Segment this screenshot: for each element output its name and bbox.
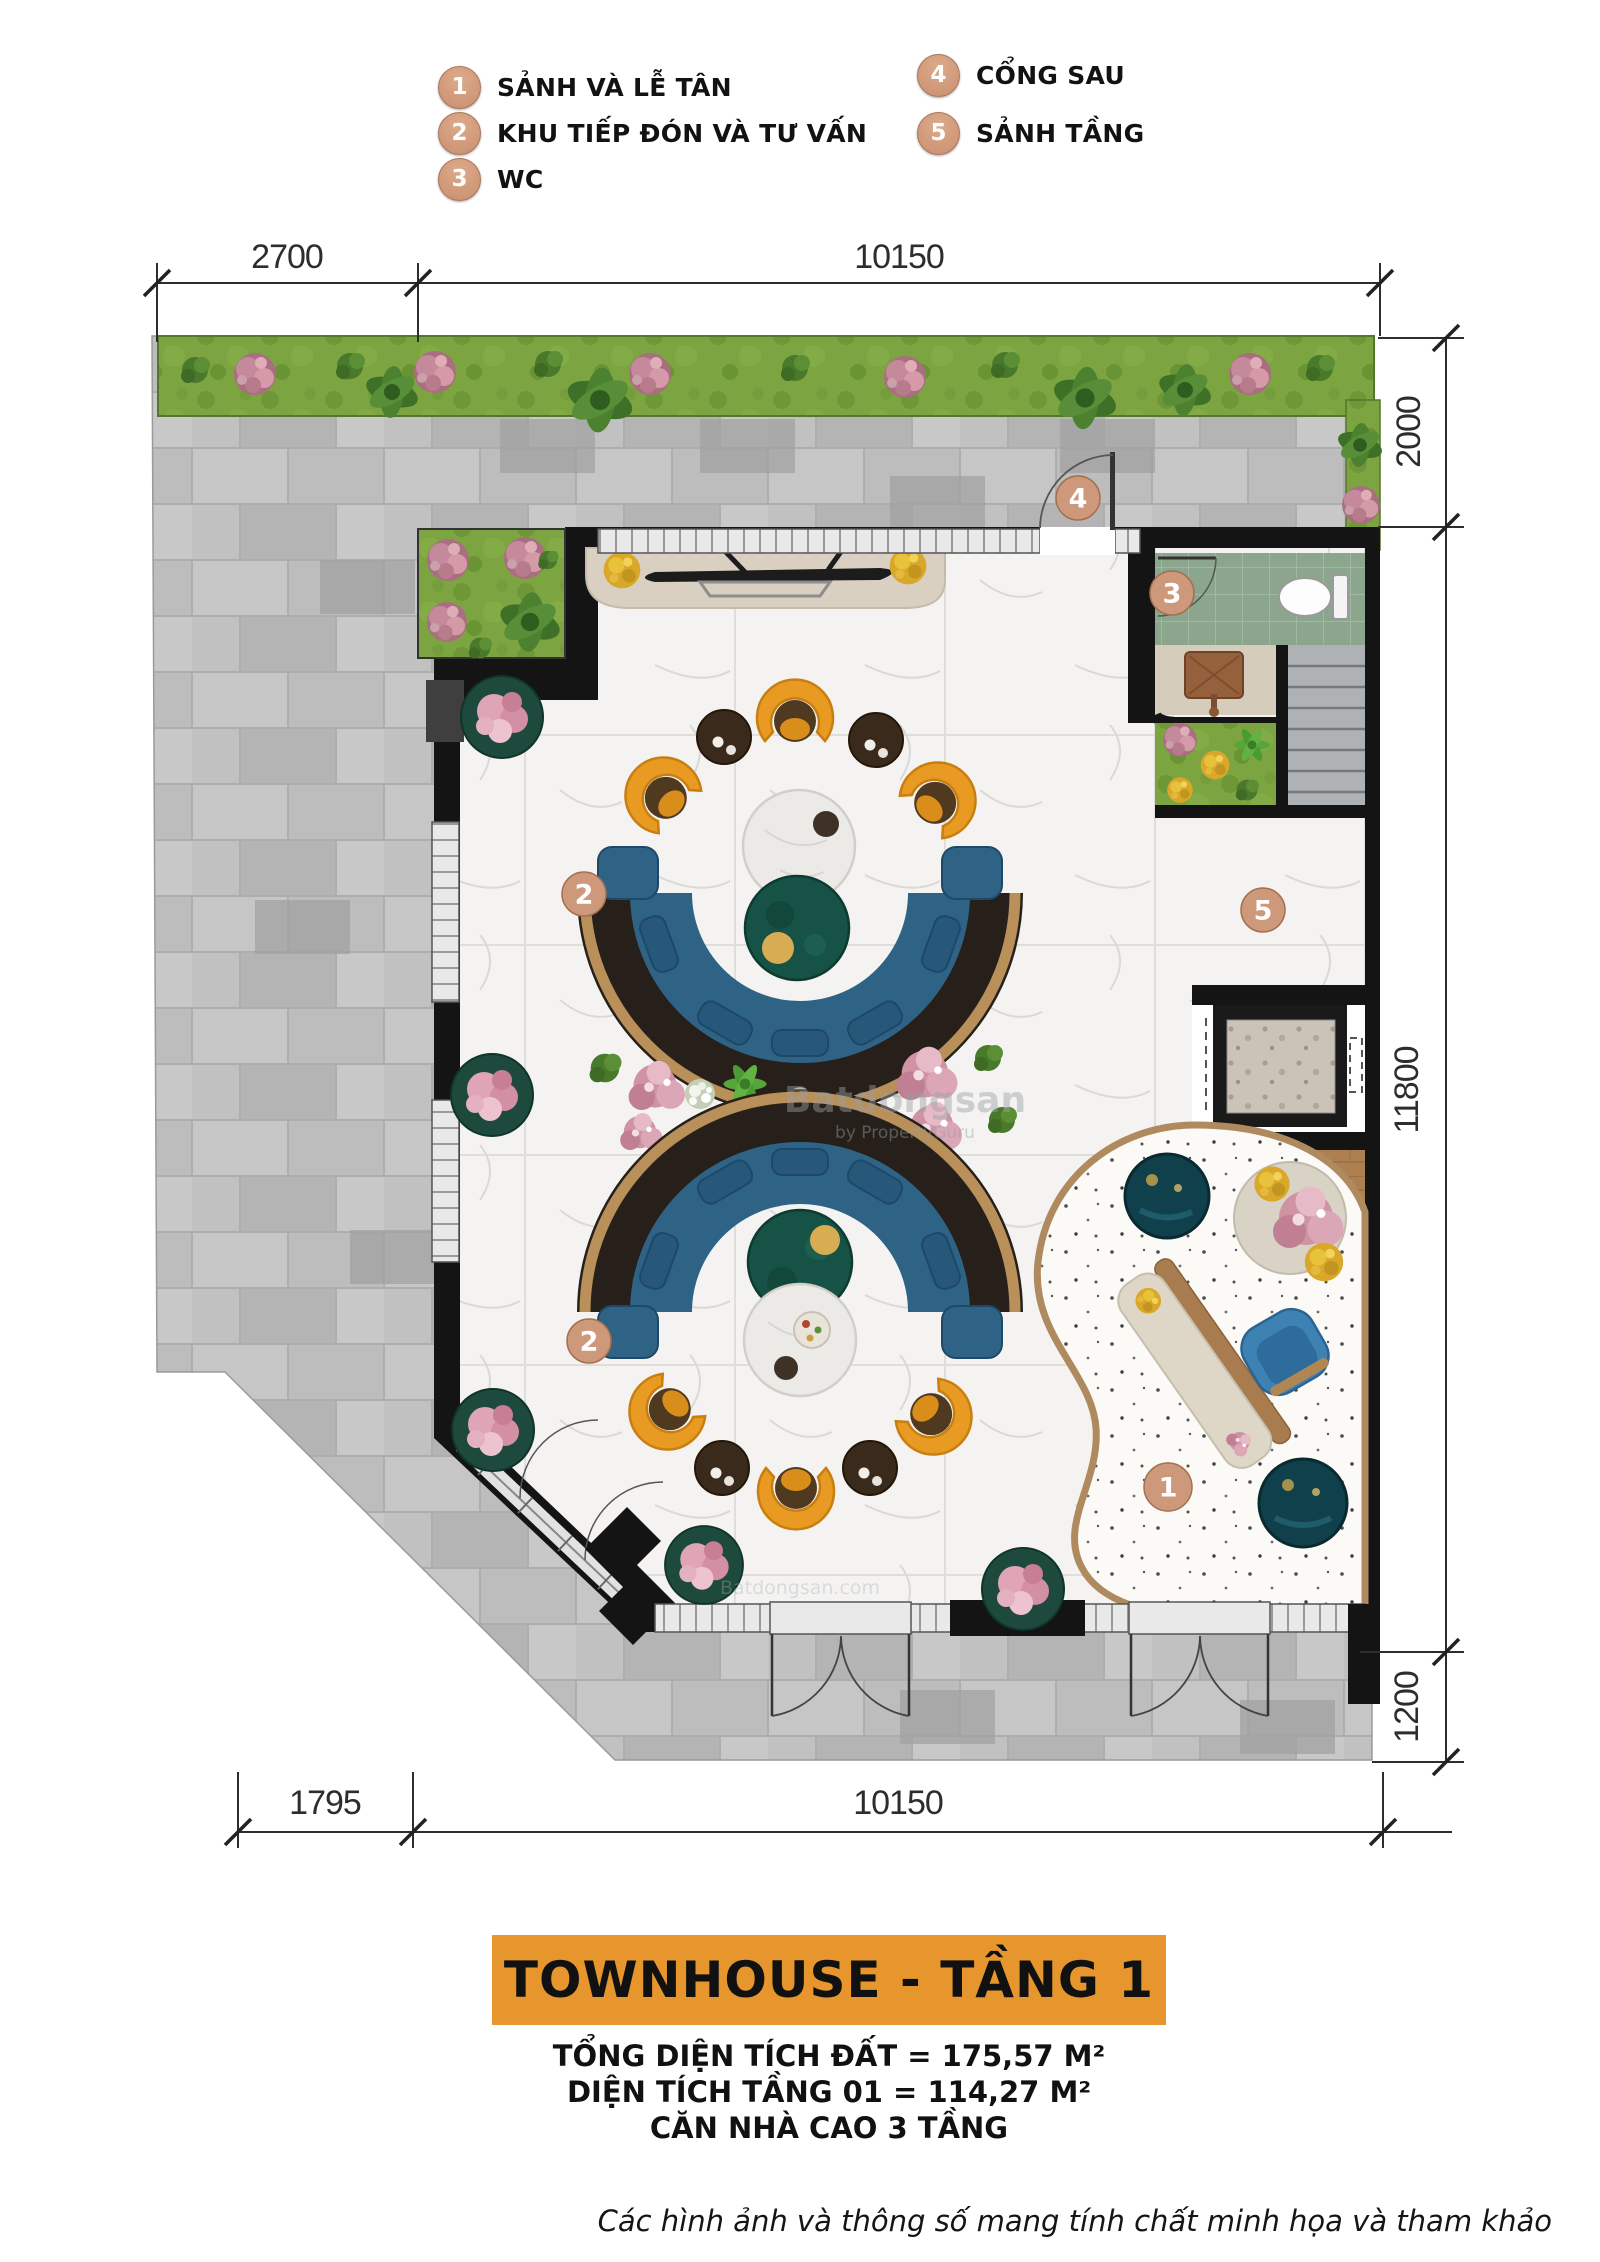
legend-item-2: 2 KHU TIẾP ĐÓN VÀ TƯ VẤN [438, 112, 867, 154]
legend-item-4: 4 CỔNG SAU [917, 54, 1125, 96]
art-rug-bottom [1259, 1459, 1347, 1547]
svg-text:3: 3 [1163, 579, 1182, 610]
legend-badge-2: 2 [438, 112, 481, 155]
dim-top-left: 2700 [251, 238, 323, 276]
legend-badge-5: 5 [917, 112, 960, 155]
legend-item-5: 5 SẢNH TẦNG [917, 112, 1144, 154]
floor-plan-drawing: 4 3 2 5 2 1 27 [0, 0, 1600, 2262]
legend-label-4: CỔNG SAU [976, 61, 1125, 90]
stat-height-note: CĂN NHÀ CAO 3 TẦNG [429, 2110, 1229, 2146]
marker-floor-hall: 5 [1241, 888, 1285, 932]
toilet-tank [1333, 575, 1348, 619]
tv-console [586, 546, 945, 608]
toilet [1279, 578, 1331, 616]
legend-badge-4: 4 [917, 54, 960, 97]
legend-item-1: 1 SẢNH VÀ LỄ TÂN [438, 66, 732, 108]
dim-top-right: 10150 [854, 238, 944, 276]
dim-bottom-right: 10150 [853, 1784, 943, 1822]
coffee-table-green [745, 876, 849, 980]
legend-badge-3: 3 [438, 158, 481, 201]
legend-label-2: KHU TIẾP ĐÓN VÀ TƯ VẤN [497, 119, 867, 148]
dim-bottom-left: 1795 [289, 1784, 361, 1822]
marker-wc: 3 [1150, 571, 1194, 615]
marker-consult-bottom: 2 [567, 1319, 611, 1363]
disclaimer-note: Các hình ảnh và thông số mang tính chất … [520, 2204, 1552, 2238]
marker-lobby: 1 [1144, 1463, 1192, 1511]
svg-text:4: 4 [1069, 484, 1088, 515]
page-title: TOWNHOUSE - TẦNG 1 [504, 1951, 1154, 2009]
marker-back-gate: 4 [1056, 476, 1100, 520]
dim-right-bottom: 1200 [1388, 1671, 1426, 1743]
svg-text:Batdongsan: Batdongsan [784, 1080, 1026, 1121]
garden-square [418, 529, 565, 658]
stat-total-area: TỔNG DIỆN TÍCH ĐẤT = 175,57 M² [429, 2038, 1229, 2074]
marker-consult-top: 2 [562, 872, 606, 916]
svg-text:2: 2 [580, 1327, 599, 1358]
dim-right-top: 2000 [1390, 396, 1428, 468]
floor-plan-page: { "legend": { "items": [ {"num": "1", "l… [0, 0, 1600, 2262]
art-rug-top [1125, 1154, 1209, 1238]
area-stats: TỔNG DIỆN TÍCH ĐẤT = 175,57 M² DIỆN TÍCH… [429, 2038, 1229, 2146]
legend-item-3: 3 WC [438, 158, 544, 200]
svg-text:2: 2 [575, 880, 594, 911]
stairs [1276, 645, 1365, 810]
svg-text:5: 5 [1254, 896, 1273, 927]
dim-right-middle: 11800 [1388, 1046, 1426, 1133]
stat-floor-area: DIỆN TÍCH TẦNG 01 = 114,27 M² [429, 2074, 1229, 2110]
reception-area [1037, 1125, 1365, 1618]
svg-text:1: 1 [1159, 1473, 1178, 1504]
legend-label-5: SẢNH TẦNG [976, 119, 1144, 148]
legend-label-3: WC [497, 165, 544, 194]
title-banner: TOWNHOUSE - TẦNG 1 [492, 1935, 1166, 2025]
watermark-small: Batdongsan.com [720, 1577, 880, 1599]
legend-badge-1: 1 [438, 66, 481, 109]
svg-text:by PropertyGuru: by PropertyGuru [835, 1123, 975, 1143]
legend-label-1: SẢNH VÀ LỄ TÂN [497, 73, 732, 102]
